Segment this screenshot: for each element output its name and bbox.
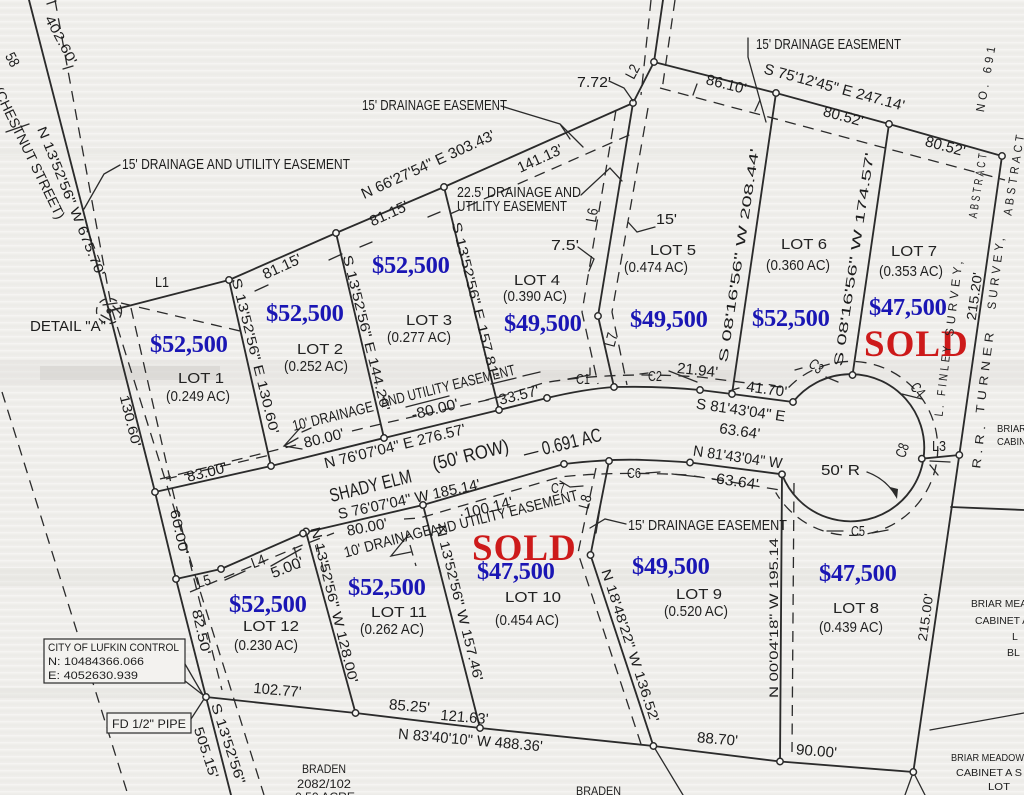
svg-text:$52,500: $52,500 — [266, 300, 344, 327]
svg-text:BRADEN: BRADEN — [576, 786, 621, 795]
svg-text:215.20': 215.20' — [964, 272, 986, 322]
svg-text:BL: BL — [1007, 647, 1020, 659]
svg-text:$52,500: $52,500 — [372, 252, 450, 279]
svg-text:$47,500: $47,500 — [477, 558, 555, 585]
svg-text:ABSTRACT: ABSTRACT — [966, 150, 990, 219]
svg-text:L2: L2 — [622, 62, 644, 82]
svg-text:C1: C1 — [576, 371, 590, 388]
svg-text:LOT 3: LOT 3 — [406, 312, 452, 329]
svg-text:ABSTRACT: ABSTRACT — [1000, 130, 1024, 216]
svg-text:C5: C5 — [851, 523, 865, 540]
svg-text:$49,500: $49,500 — [632, 553, 710, 580]
svg-text:7.72': 7.72' — [577, 74, 611, 91]
svg-text:$52,500: $52,500 — [150, 331, 228, 358]
svg-text:141.13': 141.13' — [515, 141, 566, 176]
svg-text:SURVEY,: SURVEY, — [984, 233, 1007, 310]
svg-text:(0.353 AC): (0.353 AC) — [879, 263, 943, 280]
svg-text:C6: C6 — [627, 465, 641, 482]
svg-text:BRADEN: BRADEN — [302, 764, 346, 776]
svg-text:86.10': 86.10' — [704, 71, 748, 97]
svg-text:(0.474 AC): (0.474 AC) — [624, 259, 688, 276]
svg-text:$47,500: $47,500 — [819, 560, 897, 587]
svg-text:83.00': 83.00' — [185, 459, 229, 485]
svg-text:N 18'48'22" W 136.52': N 18'48'22" W 136.52' — [598, 567, 662, 724]
svg-text:$47,500: $47,500 — [869, 294, 947, 321]
svg-text:80.52': 80.52' — [821, 103, 865, 130]
svg-text:N 83'40'10" W 488.36': N 83'40'10" W 488.36' — [397, 726, 543, 756]
svg-text:BRIAR MEA: BRIAR MEA — [971, 598, 1024, 610]
svg-text:505.15': 505.15' — [191, 725, 222, 780]
svg-text:130.60': 130.60' — [117, 393, 144, 448]
svg-text:CABINET A S: CABINET A S — [956, 767, 1022, 779]
svg-text:(0.454 AC): (0.454 AC) — [495, 612, 559, 629]
svg-text:15' DRAINAGE EASEMENT: 15' DRAINAGE EASEMENT — [362, 97, 507, 114]
svg-text:2082/102: 2082/102 — [297, 779, 351, 791]
svg-text:DETAIL "A": DETAIL "A" — [30, 318, 106, 335]
svg-text:81.15': 81.15' — [367, 198, 411, 231]
svg-text:BRIAR MEADOW: BRIAR MEADOW — [951, 752, 1024, 764]
svg-text:LOT 7: LOT 7 — [891, 243, 937, 260]
svg-text:UTILITY EASEMENT: UTILITY EASEMENT — [457, 198, 567, 215]
svg-text:C2: C2 — [648, 368, 662, 385]
svg-text:FD 1/2" PIPE: FD 1/2" PIPE — [112, 719, 186, 731]
svg-text:LOT 9: LOT 9 — [676, 586, 722, 603]
svg-text:LOT: LOT — [988, 781, 1011, 793]
svg-text:82.50': 82.50' — [189, 608, 214, 656]
svg-text:(0.249 AC): (0.249 AC) — [166, 388, 230, 405]
svg-text:(0.252 AC): (0.252 AC) — [284, 358, 348, 375]
svg-text:— 0.691 AC: — 0.691 AC — [521, 425, 604, 465]
svg-text:60.00': 60.00' — [167, 508, 192, 556]
svg-text:58: 58 — [1, 50, 23, 70]
svg-text:LOT 6: LOT 6 — [781, 236, 827, 253]
svg-text:(0.520 AC): (0.520 AC) — [664, 603, 728, 620]
svg-text:$52,500: $52,500 — [229, 591, 307, 618]
svg-text:L1: L1 — [155, 274, 169, 291]
svg-text:15' DRAINAGE EASEMENT: 15' DRAINAGE EASEMENT — [628, 517, 787, 534]
svg-text:-63.64': -63.64' — [710, 470, 760, 494]
svg-text:N: 10484366.066: N: 10484366.066 — [48, 656, 144, 668]
svg-text:85.25': 85.25' — [388, 696, 430, 717]
svg-text:L7: L7 — [602, 331, 622, 349]
svg-text:50' R: 50' R — [821, 462, 860, 479]
svg-text:$52,500: $52,500 — [752, 305, 830, 332]
svg-text:(0.277 AC): (0.277 AC) — [387, 329, 451, 346]
svg-text:NO. 691: NO. 691 — [973, 42, 999, 113]
svg-text:90.00': 90.00' — [795, 741, 837, 762]
svg-text:88.70': 88.70' — [696, 729, 738, 750]
svg-text:LOT 11: LOT 11 — [371, 604, 427, 621]
svg-text:S 13'52'56" E 157.81': S 13'52'56" E 157.81' — [449, 220, 502, 379]
svg-text:63.64': 63.64' — [718, 420, 761, 443]
svg-text:N 00'04'18" W 195.14: N 00'04'18" W 195.14 — [767, 538, 781, 698]
svg-text:CITY OF LUFKIN CONTROL: CITY OF LUFKIN CONTROL — [48, 642, 179, 654]
svg-text:R.R.: R.R. — [969, 420, 989, 469]
svg-text:E: 4052630.939: E: 4052630.939 — [48, 670, 138, 682]
svg-text:L: L — [1012, 631, 1018, 643]
svg-text:$49,500: $49,500 — [630, 306, 708, 333]
svg-text:LOT 1: LOT 1 — [178, 370, 224, 387]
svg-text:(0.230 AC): (0.230 AC) — [234, 637, 298, 654]
svg-text:LOT 2: LOT 2 — [297, 341, 343, 358]
svg-text:15': 15' — [656, 211, 677, 228]
svg-text:LOT 5: LOT 5 — [650, 242, 696, 259]
svg-text:C8: C8 — [892, 441, 913, 460]
svg-text:LOT 10: LOT 10 — [505, 589, 561, 606]
svg-text:$52,500: $52,500 — [348, 574, 426, 601]
svg-text:C7: C7 — [551, 480, 565, 497]
svg-text:15' DRAINAGE AND UTILITY EASEM: 15' DRAINAGE AND UTILITY EASEMENT — [122, 156, 350, 173]
svg-text:402.60': 402.60' — [42, 13, 80, 67]
svg-text:(0.360 AC): (0.360 AC) — [766, 257, 830, 274]
svg-text:(0.390 AC): (0.390 AC) — [503, 288, 567, 305]
svg-text:15' DRAINAGE EASEMENT: 15' DRAINAGE EASEMENT — [756, 36, 901, 53]
svg-text:LOT 8: LOT 8 — [833, 600, 879, 617]
svg-text:CABINET A: CABINET A — [975, 615, 1024, 627]
svg-text:7.5': 7.5' — [551, 237, 579, 254]
svg-text:$49,500: $49,500 — [504, 310, 582, 337]
svg-text:L3: L3 — [932, 438, 946, 455]
svg-text:CABIN: CABIN — [997, 436, 1024, 448]
svg-text:BRIAR: BRIAR — [997, 423, 1024, 435]
svg-text:80.52': 80.52' — [923, 133, 967, 160]
svg-text:(0.439 AC): (0.439 AC) — [819, 619, 883, 636]
svg-text:81.15': 81.15' — [260, 251, 304, 284]
svg-text:LOT 4: LOT 4 — [514, 272, 560, 289]
svg-text:L6: L6 — [583, 207, 602, 224]
svg-text:L8: L8 — [576, 493, 596, 511]
svg-text:(0.262 AC): (0.262 AC) — [360, 621, 424, 638]
svg-text:LOT 12: LOT 12 — [243, 618, 299, 635]
